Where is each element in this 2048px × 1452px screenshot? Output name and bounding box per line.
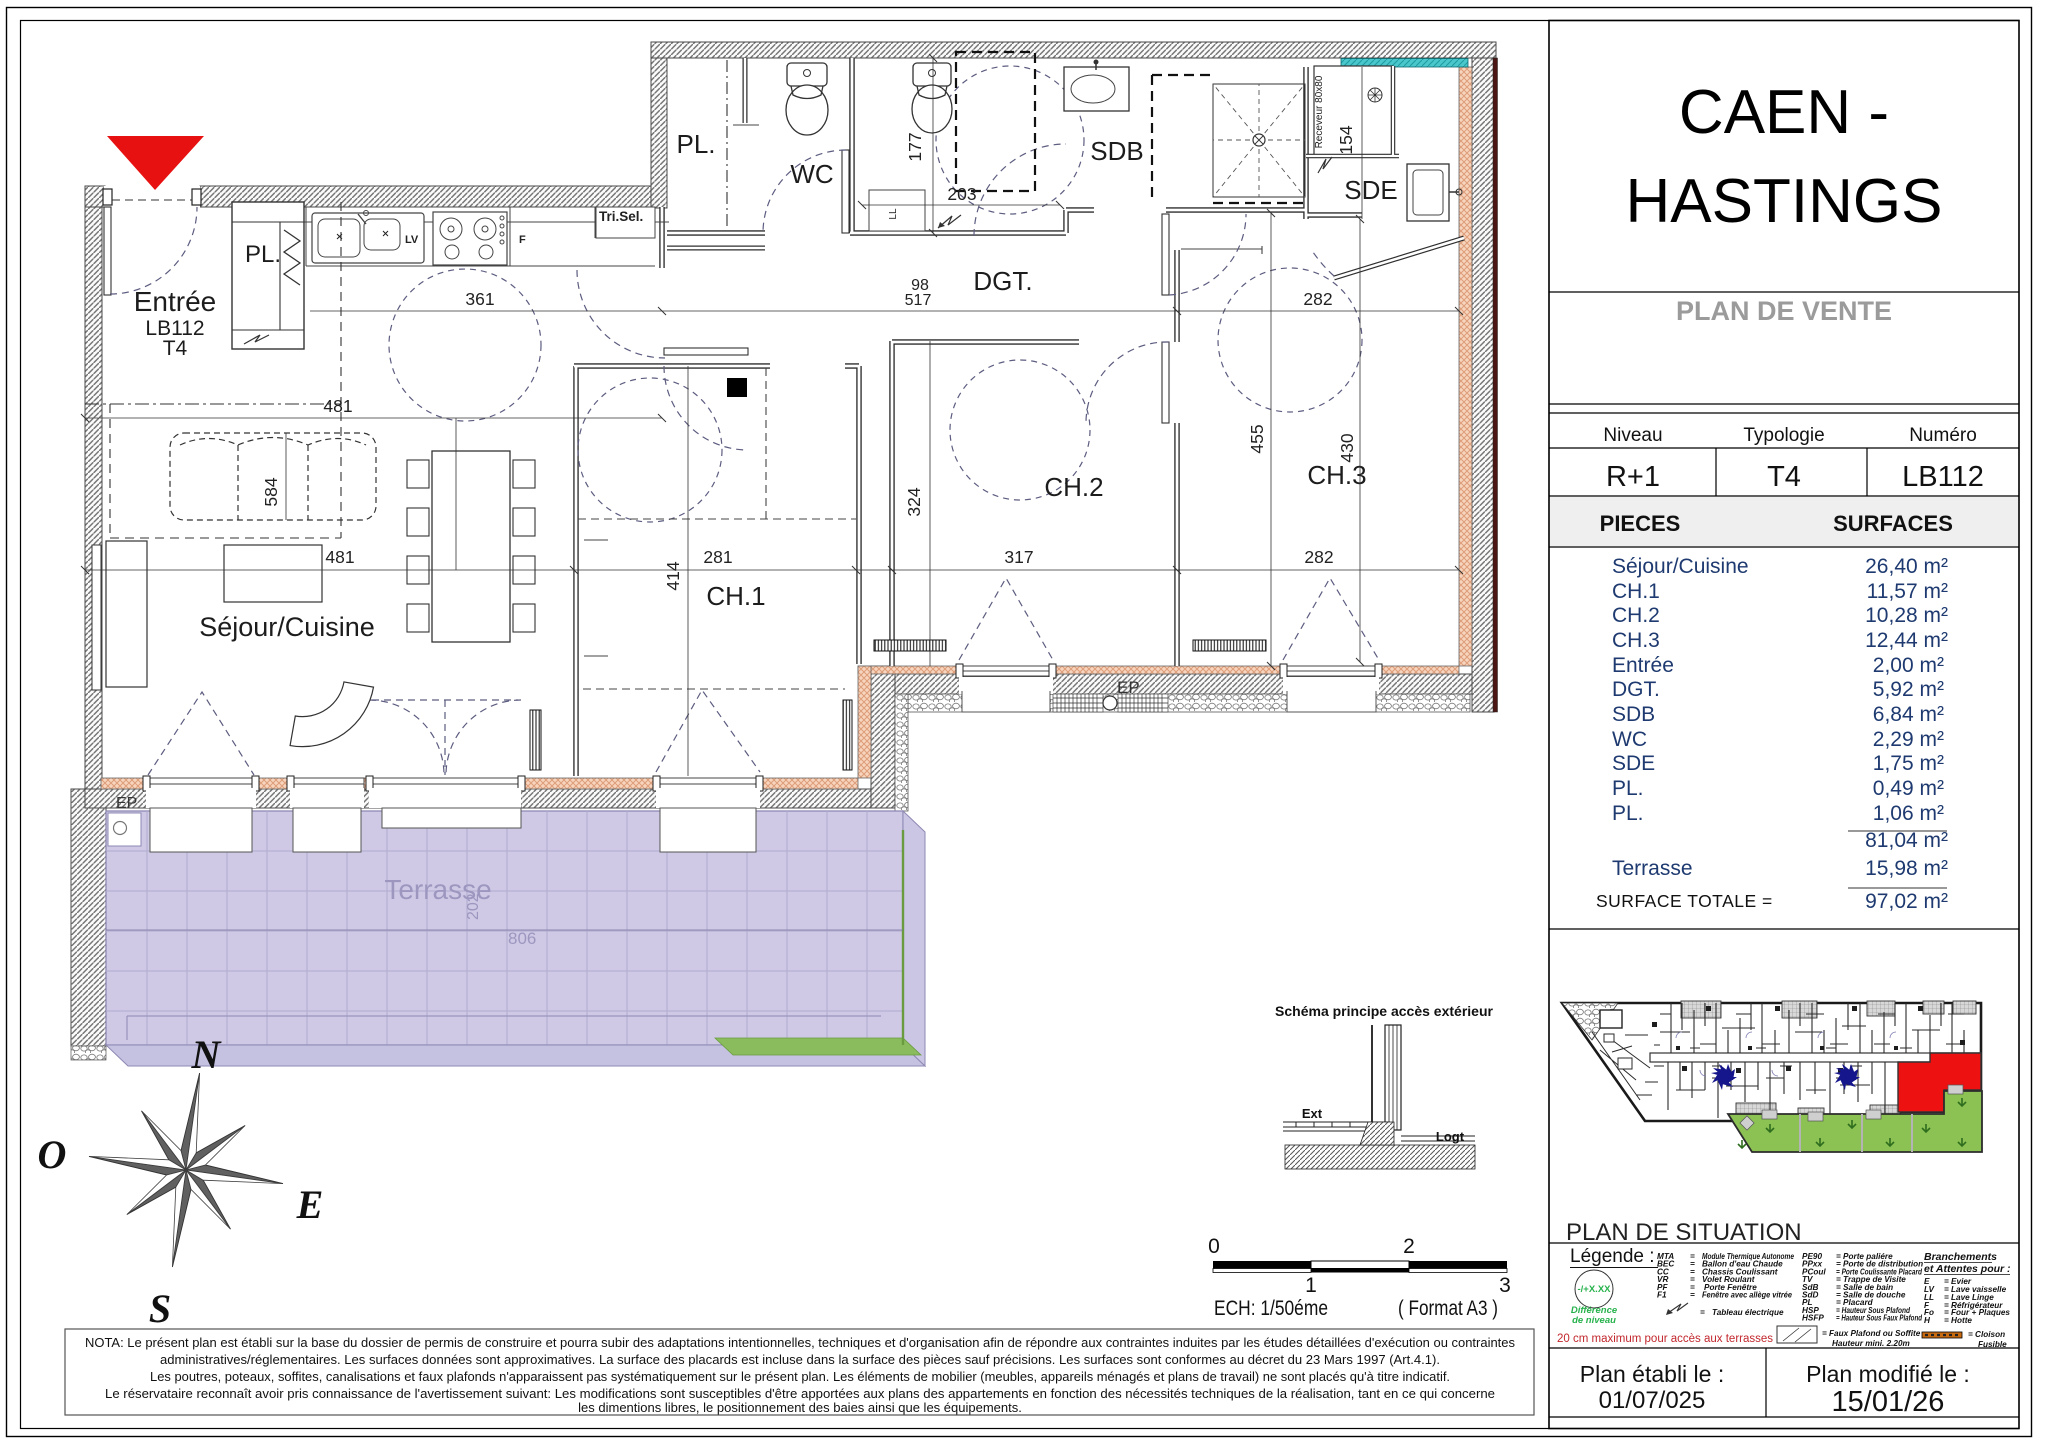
svg-text:Hauteur mini. 2.20m: Hauteur mini. 2.20m: [1832, 1339, 1910, 1348]
svg-text:Les poutres, poteaux, soffites: Les poutres, poteaux, soffites, canalisa…: [150, 1369, 1450, 1384]
svg-text:HSFP: HSFP: [1802, 1314, 1824, 1323]
svg-text:( Format A3 ): ( Format A3 ): [1398, 1297, 1498, 1320]
svg-text:Typologie: Typologie: [1743, 425, 1824, 446]
svg-text:les dimentions libres, le posi: les dimentions libres, le positionnement…: [578, 1400, 1022, 1415]
svg-text:1: 1: [1305, 1274, 1317, 1297]
svg-text:Légende :: Légende :: [1570, 1246, 1655, 1267]
svg-text:= Hauteur Sous Faux Plafond: = Hauteur Sous Faux Plafond: [1836, 1314, 1923, 1323]
svg-text:WC: WC: [1612, 728, 1647, 751]
svg-text:de niveau: de niveau: [1572, 1315, 1616, 1326]
svg-text:N: N: [191, 1032, 223, 1077]
svg-text:1,75 m²: 1,75 m²: [1873, 752, 1944, 775]
svg-text:97,02 m²: 97,02 m²: [1865, 890, 1948, 913]
svg-text:F1: F1: [1657, 1291, 1667, 1300]
svg-text:-/+X.XX: -/+X.XX: [1578, 1284, 1612, 1295]
svg-text:Branchements: Branchements: [1924, 1251, 1997, 1263]
svg-text:PL.: PL.: [1612, 802, 1644, 825]
svg-text:SDB: SDB: [1612, 703, 1655, 726]
svg-text:455: 455: [1247, 424, 1267, 453]
svg-text:LB112: LB112: [1902, 461, 1984, 493]
svg-text:=: =: [1700, 1308, 1705, 1317]
svg-text:282: 282: [1304, 547, 1333, 567]
svg-text:SDE: SDE: [1612, 752, 1655, 775]
svg-text:LL: LL: [888, 208, 899, 220]
svg-text:11,57 m²: 11,57 m²: [1867, 580, 1948, 603]
svg-text:Niveau: Niveau: [1603, 425, 1662, 446]
svg-text:0: 0: [1208, 1235, 1220, 1258]
svg-text:PLAN DE SITUATION: PLAN DE SITUATION: [1566, 1219, 1802, 1246]
svg-text:CAEN -: CAEN -: [1679, 78, 1889, 147]
svg-text:PL.: PL.: [245, 241, 281, 268]
svg-text:Le réservataire reconnaît avoi: Le réservataire reconnaît avoir pris con…: [105, 1386, 1495, 1401]
svg-text:CH.2: CH.2: [1612, 604, 1660, 627]
svg-text:E: E: [296, 1182, 324, 1227]
svg-text:SDB: SDB: [1090, 136, 1143, 166]
svg-text:81,04 m²: 81,04 m²: [1865, 829, 1948, 852]
svg-text:20 cm maximum pour accès aux t: 20 cm maximum pour accès aux terrasses: [1557, 1333, 1773, 1345]
svg-text:CH.1: CH.1: [706, 581, 765, 611]
svg-text:203: 203: [947, 184, 976, 204]
svg-text:HASTINGS: HASTINGS: [1626, 167, 1943, 236]
svg-text:481: 481: [325, 547, 354, 567]
svg-text:2,29 m²: 2,29 m²: [1873, 728, 1944, 751]
svg-text:SURFACE TOTALE =: SURFACE TOTALE =: [1596, 891, 1773, 911]
svg-text:Receveur 80x80: Receveur 80x80: [1314, 75, 1325, 148]
svg-text:PL.: PL.: [676, 129, 715, 159]
svg-text:Séjour/Cuisine: Séjour/Cuisine: [199, 612, 375, 642]
svg-text:Fusible: Fusible: [1978, 1340, 2007, 1349]
svg-text:5,92 m²: 5,92 m²: [1873, 678, 1944, 701]
svg-text:EP: EP: [116, 795, 137, 812]
svg-text:317: 317: [1004, 547, 1033, 567]
svg-text:Schéma principe accès extérieu: Schéma principe accès extérieur: [1275, 1003, 1493, 1019]
svg-text:EP: EP: [1117, 678, 1140, 697]
svg-text:0,49 m²: 0,49 m²: [1873, 777, 1944, 800]
svg-text:01/07/025: 01/07/025: [1599, 1387, 1706, 1414]
svg-text:PL.: PL.: [1612, 777, 1644, 800]
svg-text:et Attentes pour :: et Attentes pour :: [1924, 1263, 2011, 1275]
svg-text:CH.2: CH.2: [1044, 472, 1103, 502]
svg-text:CH.1: CH.1: [1612, 580, 1660, 603]
svg-text:806: 806: [508, 929, 536, 948]
svg-text:26,40 m²: 26,40 m²: [1865, 555, 1948, 578]
svg-text:3: 3: [1499, 1274, 1511, 1297]
svg-text:430: 430: [1337, 433, 1357, 462]
svg-text:361: 361: [465, 289, 494, 309]
svg-text:Plan établi le :: Plan établi le :: [1580, 1361, 1724, 1387]
svg-text:202: 202: [465, 893, 482, 920]
svg-text:DGT.: DGT.: [1612, 678, 1660, 701]
svg-text:10,28 m²: 10,28 m²: [1865, 604, 1948, 627]
svg-text:=: =: [1690, 1291, 1695, 1300]
svg-text:281: 281: [703, 547, 732, 567]
svg-text:Entrée: Entrée: [134, 286, 217, 317]
svg-text:SURFACES: SURFACES: [1833, 511, 1953, 536]
svg-text:2,00 m²: 2,00 m²: [1873, 654, 1944, 677]
svg-text:= Cloison: = Cloison: [1968, 1330, 2005, 1339]
svg-text:Fenêtre avec allège vitrée: Fenêtre avec allège vitrée: [1702, 1291, 1792, 1300]
svg-text:324: 324: [904, 487, 924, 516]
svg-text:15/01/26: 15/01/26: [1832, 1386, 1945, 1418]
svg-text:1,06 m²: 1,06 m²: [1873, 802, 1944, 825]
svg-text:O: O: [38, 1132, 67, 1177]
svg-text:Tableau électrique: Tableau électrique: [1712, 1308, 1784, 1317]
svg-text:Logt: Logt: [1436, 1129, 1465, 1144]
svg-text:PLAN DE VENTE: PLAN DE VENTE: [1676, 296, 1892, 326]
svg-text:NOTA: Le présent plan est étab: NOTA: Le présent plan est établi sur la …: [85, 1335, 1515, 1350]
svg-text:Terrasse: Terrasse: [1612, 857, 1693, 880]
svg-text:177: 177: [905, 132, 925, 161]
svg-text:Entrée: Entrée: [1612, 654, 1674, 677]
svg-text:T4: T4: [1767, 461, 1801, 493]
svg-text:414: 414: [663, 561, 683, 590]
svg-text:Ext: Ext: [1302, 1106, 1323, 1121]
svg-text:15,98 m²: 15,98 m²: [1865, 857, 1948, 880]
svg-text:Séjour/Cuisine: Séjour/Cuisine: [1612, 555, 1749, 578]
svg-text:12,44 m²: 12,44 m²: [1865, 629, 1948, 652]
svg-text:WC: WC: [790, 159, 833, 189]
svg-text:282: 282: [1303, 289, 1332, 309]
svg-text:PIECES: PIECES: [1600, 511, 1681, 536]
svg-text:T4: T4: [163, 337, 188, 360]
svg-text:517: 517: [905, 292, 932, 309]
svg-text:2: 2: [1403, 1235, 1415, 1258]
svg-text:ECH: 1/50éme: ECH: 1/50éme: [1214, 1297, 1328, 1320]
svg-text:Numéro: Numéro: [1909, 425, 1977, 446]
svg-text:CH.3: CH.3: [1612, 629, 1660, 652]
svg-text:S: S: [149, 1286, 171, 1331]
svg-text:LV: LV: [405, 234, 419, 246]
svg-text:SDE: SDE: [1344, 175, 1397, 205]
svg-text:R+1: R+1: [1606, 461, 1660, 493]
svg-text:= Hotte: = Hotte: [1944, 1316, 1972, 1325]
svg-text:DGT.: DGT.: [973, 266, 1032, 296]
svg-text:154: 154: [1336, 125, 1356, 154]
svg-text:584: 584: [261, 477, 281, 506]
svg-text:Plan modifié le :: Plan modifié le :: [1806, 1361, 1970, 1387]
svg-text:F: F: [519, 234, 526, 246]
svg-text:administratives/réglementaires: administratives/réglementaires. Les surf…: [160, 1352, 1440, 1367]
svg-text:CH.3: CH.3: [1307, 460, 1366, 490]
svg-text:6,84 m²: 6,84 m²: [1873, 703, 1944, 726]
svg-text:481: 481: [323, 396, 352, 416]
svg-text:Tri.Sel.: Tri.Sel.: [599, 209, 643, 224]
svg-text:= Faux Plafond ou Soffite: = Faux Plafond ou Soffite: [1822, 1329, 1921, 1338]
